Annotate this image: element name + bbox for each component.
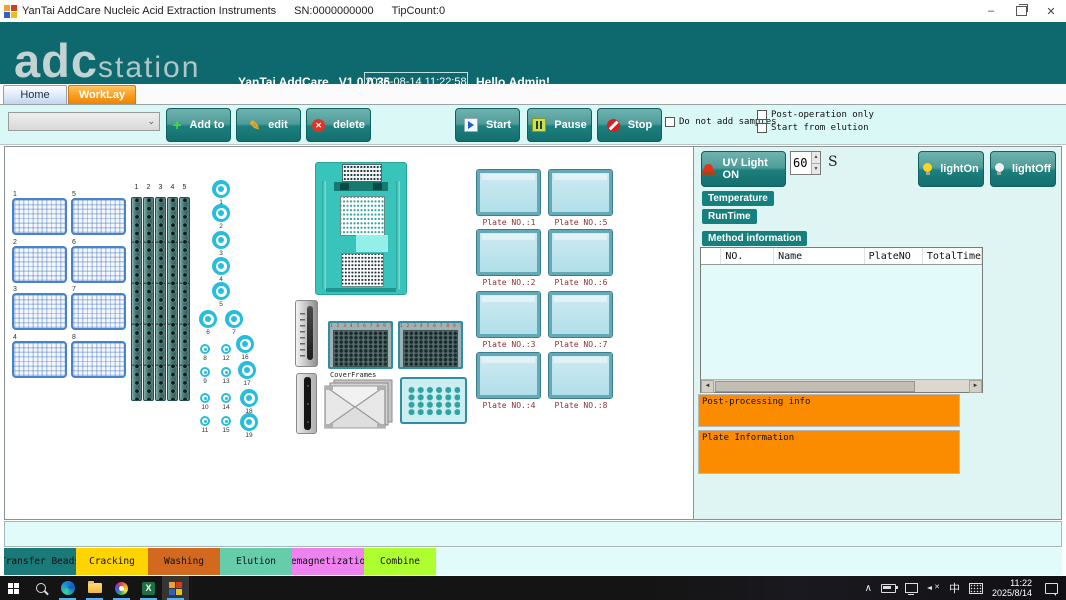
delete-label: delete <box>333 119 365 131</box>
window-titlebar: YanTai AddCare Nucleic Acid Extraction I… <box>0 0 1066 23</box>
sample-plate-number: 2 <box>13 239 17 246</box>
plate-slot-5[interactable] <box>549 170 612 215</box>
deck-position-7[interactable]: 7 <box>225 310 243 328</box>
spinner-down-icon[interactable]: ▼ <box>812 164 820 175</box>
stop-icon <box>607 119 620 132</box>
instrument-graphic <box>315 162 407 295</box>
method-table-header: NO. Name PlateNO TotalTime <box>701 248 982 265</box>
deep-well-plate-2[interactable]: 1 2 3 4 5 6 7 8 9 10 11 12 <box>398 321 463 369</box>
stop-label: Stop <box>628 119 652 131</box>
table-h-scrollbar[interactable]: ◄ ► <box>701 379 982 392</box>
light-on-label: lightOn <box>940 163 979 175</box>
taskbar-explorer-button[interactable] <box>81 576 108 600</box>
deck-position-17[interactable]: 17 <box>238 361 256 379</box>
excel-icon: X <box>142 582 155 595</box>
clock-date: 2025/8/14 <box>992 588 1032 598</box>
checkbox-box[interactable] <box>757 123 767 133</box>
scroll-right-icon[interactable]: ► <box>969 380 982 393</box>
checkbox-post-operation-only[interactable]: Post-operation only <box>757 110 874 120</box>
close-button[interactable]: ✕ <box>1036 1 1066 22</box>
deck-position-5[interactable]: 5 <box>212 282 230 300</box>
uv-lamp-icon <box>702 164 715 175</box>
plate-slot-8[interactable] <box>549 353 612 398</box>
search-icon <box>36 583 46 593</box>
edge-browser-icon <box>61 581 75 595</box>
system-tray: ∧ 中 11:22 2025/8/14 <box>865 576 1066 600</box>
deck-position-11[interactable]: 11 <box>200 416 210 426</box>
tip-rack-5[interactable] <box>179 197 190 401</box>
restore-button[interactable] <box>1006 1 1036 22</box>
post-processing-label: Post-processing info <box>702 397 810 407</box>
taskbar-search-button[interactable] <box>27 576 54 600</box>
sample-plate-7[interactable]: 7 <box>71 293 126 330</box>
bulb-off-icon <box>995 163 1004 175</box>
logo-secondary: station <box>98 53 200 83</box>
network-icon[interactable] <box>905 583 918 593</box>
speaker-muted-icon[interactable] <box>927 584 940 593</box>
well-grid <box>403 330 458 367</box>
column-no: NO. <box>721 248 774 264</box>
checkbox-box[interactable] <box>665 117 675 127</box>
tip-racks <box>131 197 190 401</box>
well-grid <box>333 330 388 367</box>
row-indicator-column <box>701 248 721 264</box>
app-header: adc station YanTai AddCare V1.0.0.36 202… <box>0 22 1066 84</box>
tip-rack-4[interactable] <box>167 197 178 401</box>
uv-light-label: UV Light ON <box>723 157 785 181</box>
restore-icon <box>1016 6 1027 16</box>
legend-demagnetization: Demagnetization <box>292 548 364 575</box>
deck-position-8[interactable]: 8 <box>200 344 210 354</box>
minimize-button[interactable]: – <box>976 1 1006 22</box>
start-label: Start <box>486 119 511 131</box>
plate-slot-label: Plate NO.:2 <box>474 278 544 287</box>
plate-slot-label: Plate NO.:6 <box>546 278 616 287</box>
deck-position-10[interactable]: 10 <box>200 393 210 403</box>
method-dropdown[interactable]: ⌄ <box>8 112 160 131</box>
seconds-unit-label: S <box>828 154 838 170</box>
touch-keyboard-icon[interactable] <box>969 583 983 594</box>
sample-plate-number: 3 <box>13 286 17 293</box>
plate-slot-label: Plate NO.:5 <box>546 218 616 227</box>
minimize-icon: – <box>988 5 994 17</box>
taskbar-clock[interactable]: 11:22 2025/8/14 <box>992 578 1032 599</box>
tip-rack-number: 2 <box>143 184 154 191</box>
light-on-button[interactable]: lightOn <box>918 151 984 187</box>
temperature-badge: Temperature <box>702 191 774 206</box>
column-name: Name <box>774 248 865 264</box>
checkbox-label: Start from elution <box>771 123 869 133</box>
plate-slot-label: Plate NO.:8 <box>546 401 616 410</box>
deck-position-13[interactable]: 13 <box>221 367 231 377</box>
tab-worklay[interactable]: WorkLay <box>68 85 136 104</box>
deck-position-1[interactable]: 1 <box>212 180 230 198</box>
checkbox-label: Post-operation only <box>771 110 874 120</box>
sample-plate-4[interactable]: 4 <box>12 341 67 378</box>
file-explorer-icon <box>88 583 102 593</box>
plate-slot-label: Plate NO.:4 <box>474 401 544 410</box>
instrument-tip-head <box>342 164 382 182</box>
delete-icon: ✕ <box>312 119 325 132</box>
sample-plate-2[interactable]: 2 <box>12 246 67 283</box>
battery-icon[interactable] <box>881 584 896 593</box>
pause-button[interactable]: Pause <box>527 108 592 142</box>
plate-information-label: Plate Information <box>702 433 794 443</box>
plate-slot-6[interactable] <box>549 230 612 275</box>
runtime-badge: RunTime <box>702 209 757 224</box>
plate-slot-1[interactable] <box>477 170 540 215</box>
logo-primary: adc <box>14 37 98 84</box>
magnetic-comb-strip[interactable] <box>295 300 318 367</box>
checkbox-box[interactable] <box>757 110 767 120</box>
tip-rack-number: 5 <box>179 184 190 191</box>
sample-plate-number: 7 <box>72 286 76 293</box>
legend-washing: Washing <box>148 548 220 575</box>
comb-strip-2[interactable] <box>296 373 317 434</box>
taskbar-edge-button[interactable] <box>54 576 81 600</box>
deep-well-plate-1[interactable]: 1 2 3 4 5 6 7 8 9 10 11 12 <box>328 321 393 369</box>
pause-icon <box>532 118 546 132</box>
ime-indicator[interactable]: 中 <box>949 580 960 596</box>
plate-slot-3[interactable] <box>477 292 540 337</box>
adc-station-logo: adc station <box>14 22 200 84</box>
main-area: 1 5 2 6 3 7 4 8 1 2 3 4 5 1 2 3 4 5 6 7 … <box>4 146 1062 520</box>
deck-position-19[interactable]: 19 <box>240 413 258 431</box>
chevron-down-icon: ⌄ <box>147 116 159 127</box>
column-plateno: PlateNO <box>865 248 923 264</box>
deck-position-12[interactable]: 12 <box>221 344 231 354</box>
pencil-icon: ✎ <box>249 119 260 132</box>
sample-plate-number: 8 <box>72 334 76 341</box>
start-button[interactable]: Start <box>455 108 520 142</box>
sample-plate-number: 5 <box>72 191 76 198</box>
add-to-button[interactable]: + Add to <box>166 108 231 142</box>
notification-center-icon[interactable] <box>1045 583 1058 594</box>
scrollbar-thumb[interactable] <box>715 381 915 392</box>
close-icon: ✕ <box>1046 5 1055 18</box>
plate-slot-2[interactable] <box>477 230 540 275</box>
elution-plate-24-well[interactable] <box>400 377 467 424</box>
instrument-mid-plate <box>340 196 385 236</box>
method-table[interactable]: NO. Name PlateNO TotalTime ◄ ► <box>700 247 983 393</box>
deck-position-3[interactable]: 3 <box>212 231 230 249</box>
tab-bar: Home WorkLay <box>0 84 1066 104</box>
plate-information-box: Plate Information <box>698 430 960 474</box>
well-column-numbers: 1 2 3 4 5 6 7 8 9 10 11 12 <box>330 323 391 330</box>
status-message-strip <box>4 521 1062 547</box>
sample-plate-8[interactable]: 8 <box>71 341 126 378</box>
adc-app-icon <box>169 582 182 595</box>
cover-frames-stack[interactable] <box>322 378 396 430</box>
edit-label: edit <box>268 119 288 131</box>
uv-light-button[interactable]: UV Light ON <box>701 151 786 187</box>
sample-plate-1[interactable]: 1 <box>12 198 67 235</box>
deck-position-9[interactable]: 9 <box>200 367 210 377</box>
control-panel: UV Light ON ▲ ▼ S lightOn lightOff Tempe… <box>694 147 1061 519</box>
checkbox-start-from-elution[interactable]: Start from elution <box>757 123 869 133</box>
add-to-label: Add to <box>189 119 224 131</box>
legend-cracking: Cracking <box>76 548 148 575</box>
instrument-gantry <box>334 182 388 191</box>
well-column-numbers: 1 2 3 4 5 6 7 8 9 10 11 12 <box>400 323 461 330</box>
sample-plate-number: 6 <box>72 239 76 246</box>
spinner-up-icon[interactable]: ▲ <box>812 152 820 164</box>
scroll-left-icon[interactable]: ◄ <box>701 380 714 393</box>
taskbar-excel-button[interactable]: X <box>135 576 162 600</box>
taskbar-paint-button[interactable] <box>108 576 135 600</box>
start-menu-button[interactable] <box>0 576 27 600</box>
plate-slot-7[interactable] <box>549 292 612 337</box>
column-totaltime: TotalTime <box>923 248 982 264</box>
tab-home[interactable]: Home <box>3 85 67 104</box>
post-processing-info-box: Post-processing info <box>698 394 960 427</box>
deck-position-18[interactable]: 18 <box>240 389 258 407</box>
phase-legend: Transfer Beads Cracking Washing Elution … <box>4 548 1062 575</box>
windows-logo-icon <box>8 583 19 594</box>
sample-plate-3[interactable]: 3 <box>12 293 67 330</box>
deck-position-16[interactable]: 16 <box>236 335 254 353</box>
deck-position-6[interactable]: 6 <box>199 310 217 328</box>
sample-plate-5[interactable]: 5 <box>71 198 126 235</box>
tip-rack-numbers: 1 2 3 4 5 <box>131 184 190 191</box>
app-icon <box>4 5 17 18</box>
stop-button[interactable]: Stop <box>597 108 662 142</box>
plate-slot-label: Plate NO.:3 <box>474 340 544 349</box>
well-grid <box>407 386 460 415</box>
toolbar: ⌄ + Add to ✎ edit ✕ delete Start Pause S… <box>0 104 1066 145</box>
plus-icon: + <box>173 118 182 133</box>
paint-icon <box>115 582 128 595</box>
deck-position-14[interactable]: 14 <box>221 393 231 403</box>
worklay-deck: 1 5 2 6 3 7 4 8 1 2 3 4 5 1 2 3 4 5 6 7 … <box>5 147 694 519</box>
windows-taskbar: X ∧ 中 11:22 2025/8/14 <box>0 576 1066 600</box>
deck-position-4[interactable]: 4 <box>212 257 230 275</box>
method-information-badge: Method information <box>702 231 807 246</box>
plate-slot-label: Plate NO.:7 <box>546 340 616 349</box>
delete-button[interactable]: ✕ delete <box>306 108 371 142</box>
tip-rack-number: 4 <box>167 184 178 191</box>
sample-plate-number: 4 <box>13 334 17 341</box>
tip-rack-1[interactable] <box>131 197 142 401</box>
instrument-bottom-plate <box>341 253 384 287</box>
start-icon <box>464 118 478 132</box>
light-off-button[interactable]: lightOff <box>990 151 1056 187</box>
deck-position-15[interactable]: 15 <box>221 416 231 426</box>
taskbar-adc-app-button[interactable] <box>162 576 189 600</box>
serial-number: SN:0000000000 <box>294 5 374 17</box>
legend-transfer-beads: Transfer Beads <box>4 548 76 575</box>
tray-chevron-icon[interactable]: ∧ <box>865 583 872 594</box>
window-title: YanTai AddCare Nucleic Acid Extraction I… <box>22 5 276 17</box>
legend-combine: Combine <box>364 548 436 575</box>
plate-slot-label: Plate NO.:1 <box>474 218 544 227</box>
uv-seconds-input[interactable] <box>791 152 811 174</box>
sample-plate-6[interactable]: 6 <box>71 246 126 283</box>
plate-slot-4[interactable] <box>477 353 540 398</box>
tip-rack-number: 3 <box>155 184 166 191</box>
edit-button[interactable]: ✎ edit <box>236 108 301 142</box>
tip-rack-3[interactable] <box>155 197 166 401</box>
sample-plate-number: 1 <box>13 191 17 198</box>
pause-label: Pause <box>554 119 586 131</box>
legend-elution: Elution <box>220 548 292 575</box>
deck-position-2[interactable]: 2 <box>212 204 230 222</box>
bulb-on-icon <box>923 163 932 175</box>
uv-seconds-spinner[interactable]: ▲ ▼ <box>790 151 821 175</box>
tip-rack-number: 1 <box>131 184 142 191</box>
clock-time: 11:22 <box>1010 578 1032 588</box>
light-off-label: lightOff <box>1012 163 1051 175</box>
tip-count: TipCount:0 <box>392 5 445 17</box>
tip-rack-2[interactable] <box>143 197 154 401</box>
